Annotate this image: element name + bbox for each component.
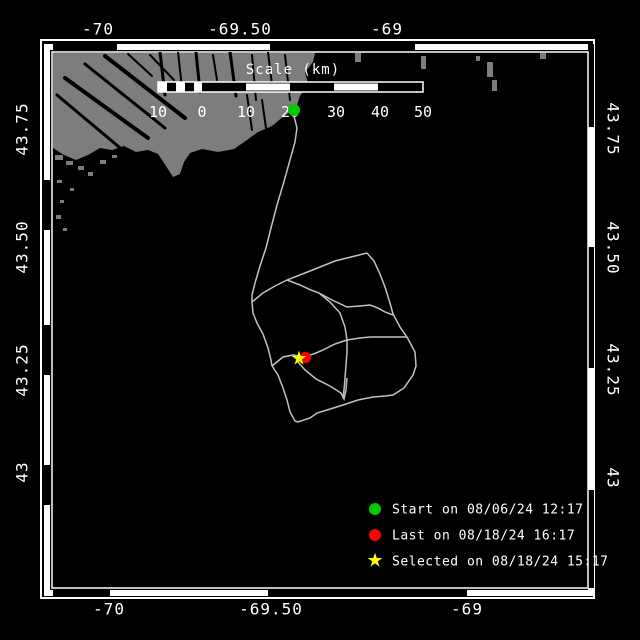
drifter-track-map-screen: -70 -69.50 -69 -70 -69.50 -69 43.75 43.5… [0, 0, 640, 640]
selected-position-star-icon[interactable]: ★ [290, 350, 307, 369]
scale-bar [158, 82, 423, 92]
top-axis-label-2: -69 [371, 20, 403, 39]
legend-last-label: Last on 08/18/24 16:17 [392, 529, 575, 544]
scale-tick-1: 0 [197, 103, 206, 121]
scale-tick-5: 40 [371, 103, 389, 121]
bottom-axis-label-0: -70 [93, 600, 125, 619]
right-axis-label-2: 43.25 [604, 343, 623, 396]
top-axis-label-0: -70 [82, 20, 114, 39]
legend-start-dot-icon [369, 503, 381, 515]
legend-selected-label: Selected on 08/18/24 15:17 [392, 555, 609, 570]
scale-tick-6: 50 [414, 103, 432, 121]
scale-tick-0: 10 [149, 103, 167, 121]
left-axis-label-3: 43 [13, 461, 32, 482]
left-axis-label-0: 43.75 [13, 102, 32, 155]
legend-start-label: Start on 08/06/24 12:17 [392, 503, 584, 518]
scale-bar-title: Scale (km) [246, 62, 340, 78]
legend-selected-star-icon: ★ [366, 552, 383, 571]
right-axis-label-1: 43.50 [604, 221, 623, 274]
top-axis-label-1: -69.50 [208, 20, 272, 39]
scale-tick-4: 30 [327, 103, 345, 121]
legend-last-dot-icon [369, 529, 381, 541]
bottom-axis-label-1: -69.50 [239, 600, 303, 619]
right-axis-label-0: 43.75 [604, 102, 623, 155]
map-canvas[interactable] [0, 0, 640, 640]
right-axis-label-3: 43 [604, 467, 623, 488]
scale-tick-2: 10 [237, 103, 255, 121]
left-axis-label-1: 43.50 [13, 220, 32, 273]
bottom-axis-label-2: -69 [451, 600, 483, 619]
left-axis-label-2: 43.25 [13, 343, 32, 396]
start-position-marker[interactable] [288, 104, 300, 116]
